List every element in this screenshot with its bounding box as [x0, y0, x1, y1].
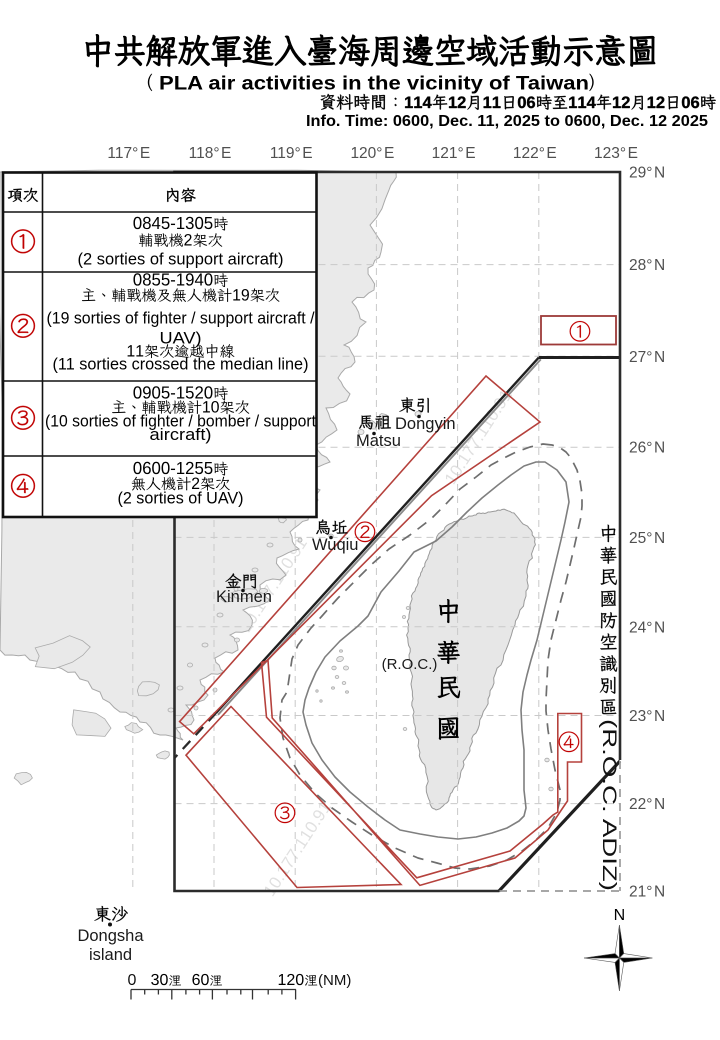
svg-text:0: 0	[127, 972, 136, 989]
svg-text:island: island	[89, 946, 132, 964]
svg-text:29°N: 29°N	[629, 165, 665, 182]
svg-text:(R.O.C.): (R.O.C.)	[382, 656, 438, 673]
svg-text:Kinmen: Kinmen	[216, 588, 272, 606]
svg-text:119°E: 119°E	[270, 145, 313, 162]
svg-text:21°N: 21°N	[629, 884, 665, 901]
svg-text:(R.O.C. ADIZ): (R.O.C. ADIZ)	[598, 719, 620, 891]
svg-text:117°E: 117°E	[107, 145, 150, 162]
svg-text:24°N: 24°N	[629, 619, 665, 636]
svg-text:25°N: 25°N	[629, 530, 665, 547]
svg-text:118°E: 118°E	[189, 145, 232, 162]
svg-text:28°N: 28°N	[629, 257, 665, 274]
svg-text:(2 sorties of support aircraft: (2 sorties of support aircraft)	[78, 250, 284, 269]
svg-text:PLA air activities in the vici: PLA air activities in the vicinity of Ta…	[159, 73, 589, 95]
svg-text:123°E: 123°E	[594, 145, 638, 162]
svg-text:120°E: 120°E	[350, 145, 394, 162]
svg-text:Info. Time: 0600, Dec. 11, 202: Info. Time: 0600, Dec. 11, 2025 to 0600,…	[306, 113, 708, 130]
svg-text:Matsu: Matsu	[356, 432, 401, 450]
svg-text:Dongsha: Dongsha	[77, 927, 144, 945]
svg-text:(11 sorties crossed the median: (11 sorties crossed the median line)	[53, 355, 309, 374]
svg-text:121°E: 121°E	[432, 145, 476, 162]
svg-text:23°N: 23°N	[629, 708, 665, 725]
svg-text:27°N: 27°N	[629, 349, 665, 366]
svg-text:UAV): UAV)	[160, 329, 202, 348]
svg-text:aircraft): aircraft)	[150, 425, 212, 444]
svg-text:Dongyin: Dongyin	[395, 415, 456, 433]
svg-text:(19 sorties of fighter / suppo: (19 sorties of fighter / support aircraf…	[47, 309, 315, 328]
svg-text:Wuqiu: Wuqiu	[312, 536, 358, 554]
svg-text:26°N: 26°N	[629, 440, 665, 457]
svg-text:(2 sorties of UAV): (2 sorties of UAV)	[118, 489, 244, 508]
svg-text:122°E: 122°E	[513, 145, 557, 162]
svg-text:(NM): (NM)	[318, 972, 351, 989]
svg-text:N: N	[614, 907, 626, 924]
svg-text:22°N: 22°N	[629, 796, 665, 813]
